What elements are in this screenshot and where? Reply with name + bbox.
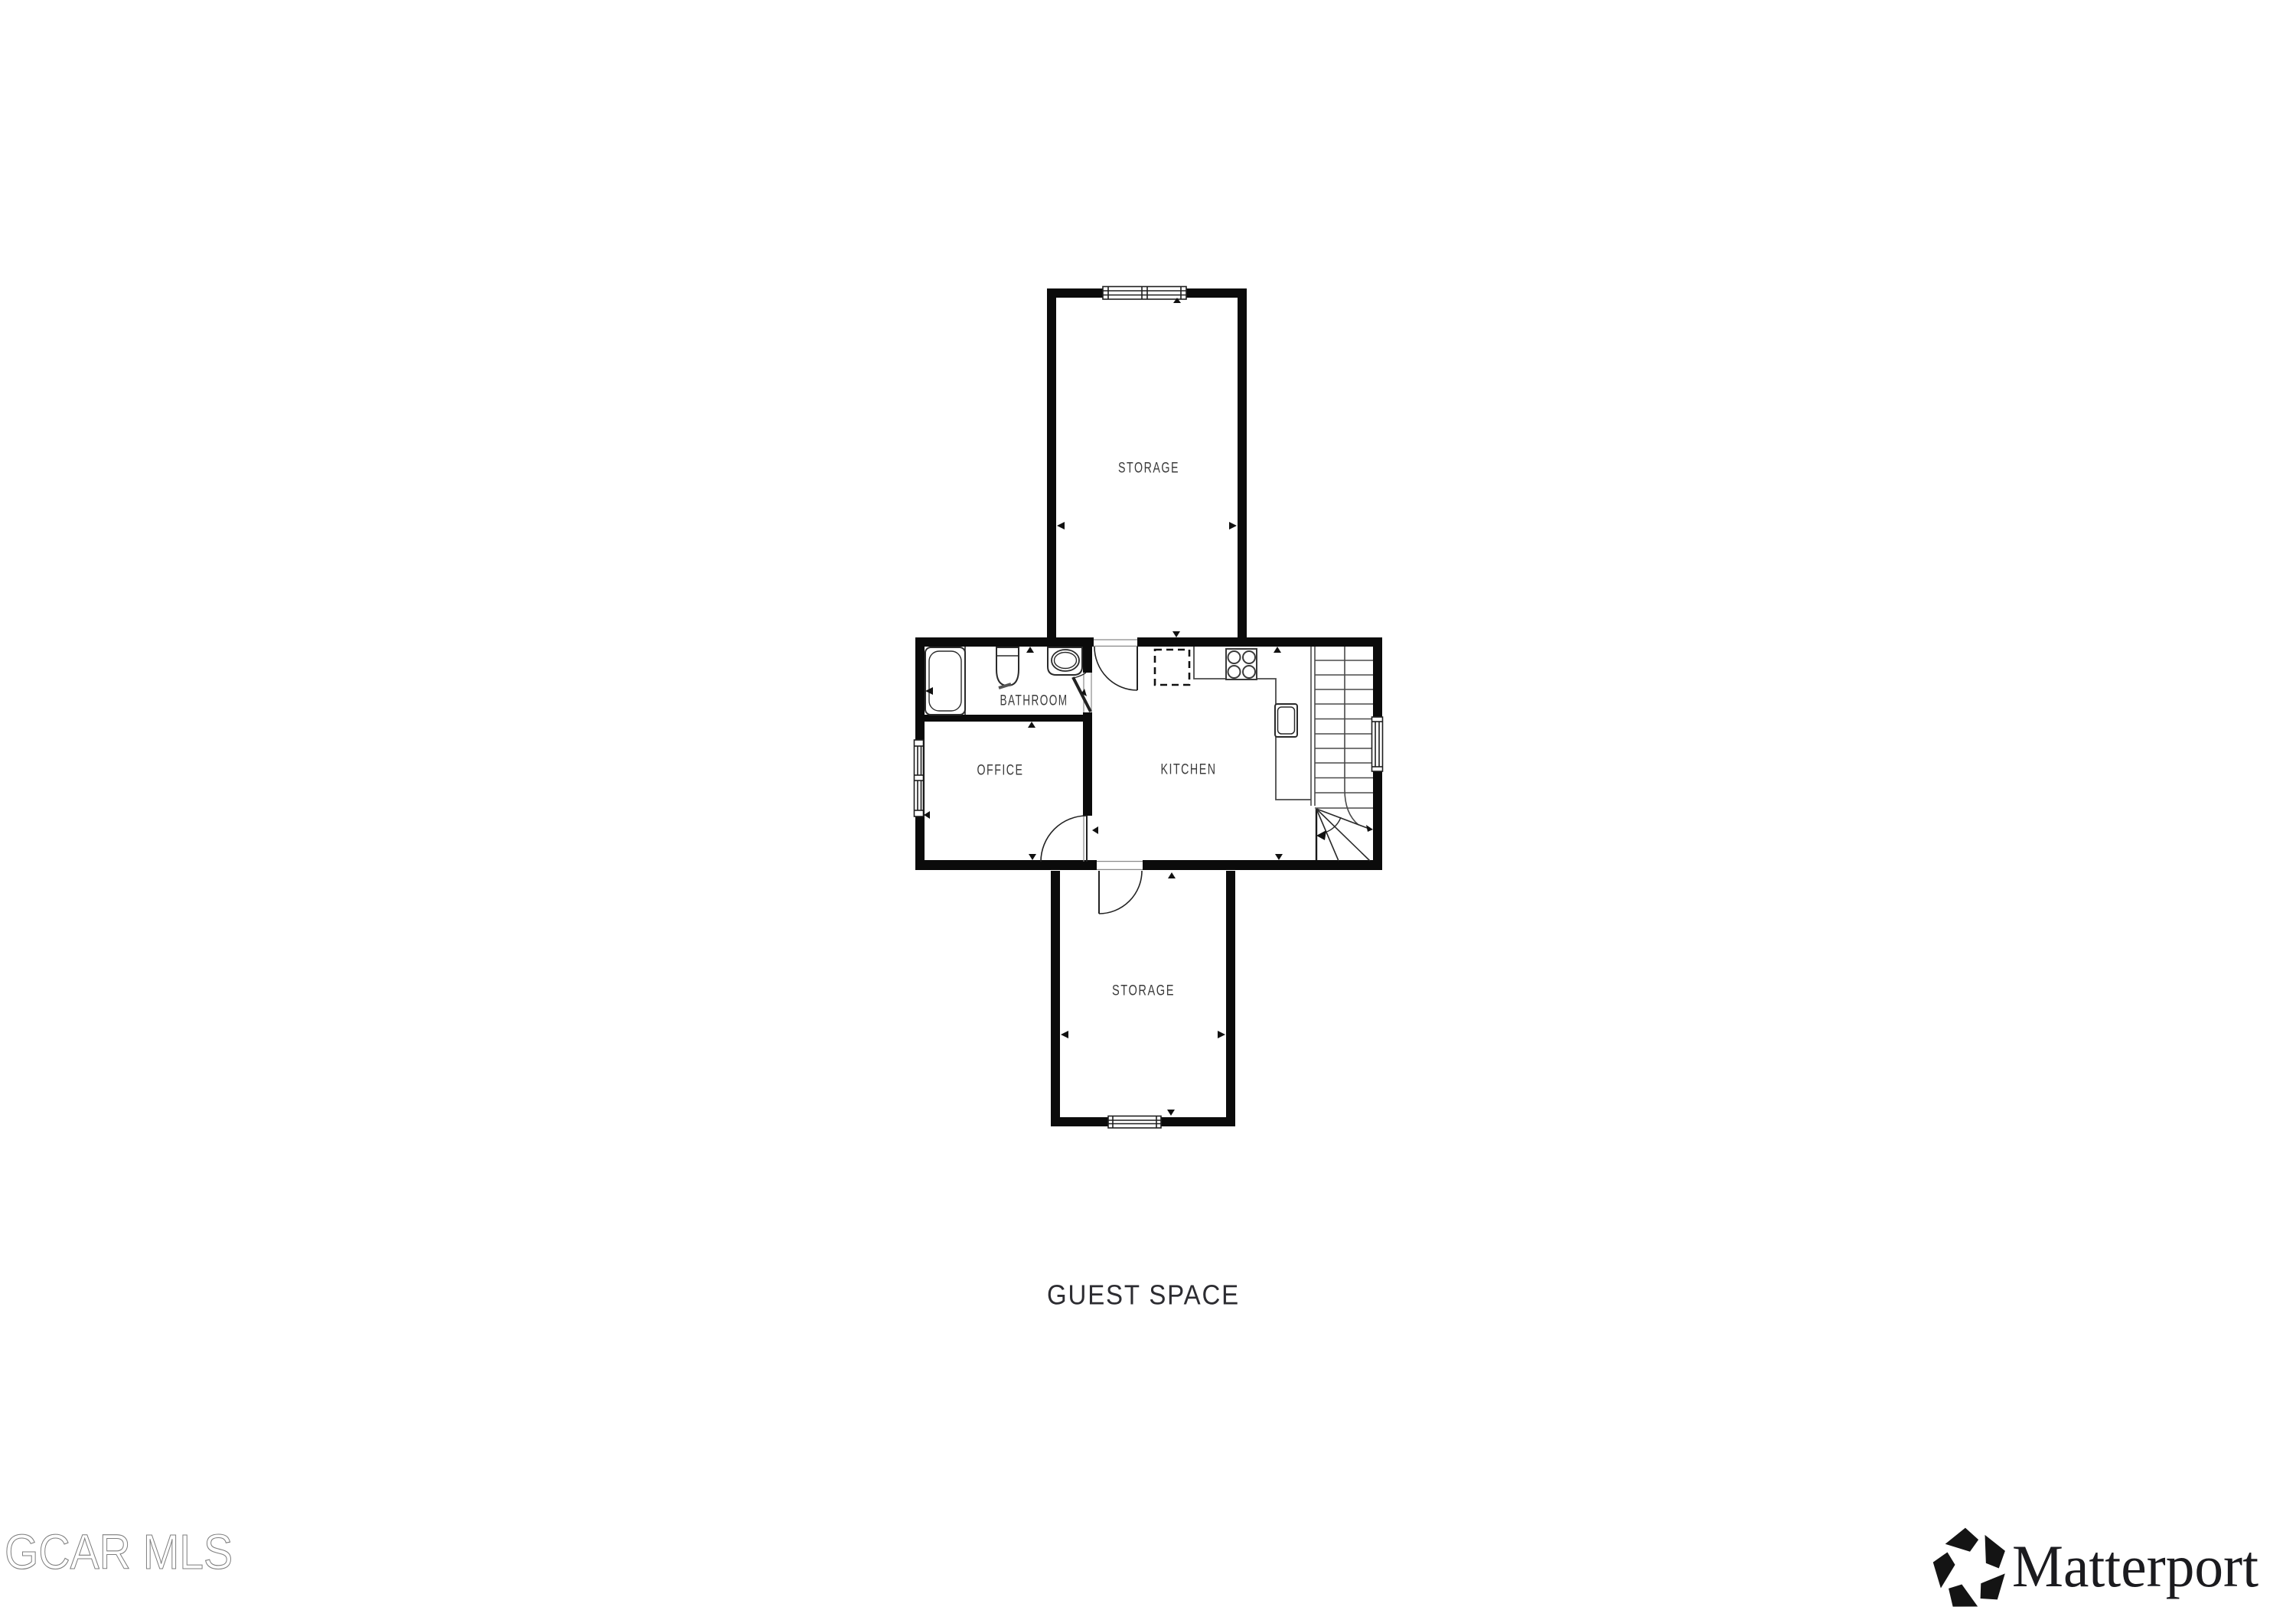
svg-text:BATHROOM: BATHROOM <box>1000 693 1068 709</box>
svg-text:STORAGE: STORAGE <box>1112 983 1175 999</box>
svg-text:GUEST SPACE: GUEST SPACE <box>1047 1279 1240 1311</box>
svg-text:Matterport: Matterport <box>2012 1533 2258 1599</box>
svg-text:KITCHEN: KITCHEN <box>1161 762 1217 778</box>
svg-text:OFFICE: OFFICE <box>977 763 1024 779</box>
svg-text:STORAGE: STORAGE <box>1118 461 1179 477</box>
svg-text:GCAR MLS: GCAR MLS <box>5 1524 233 1579</box>
